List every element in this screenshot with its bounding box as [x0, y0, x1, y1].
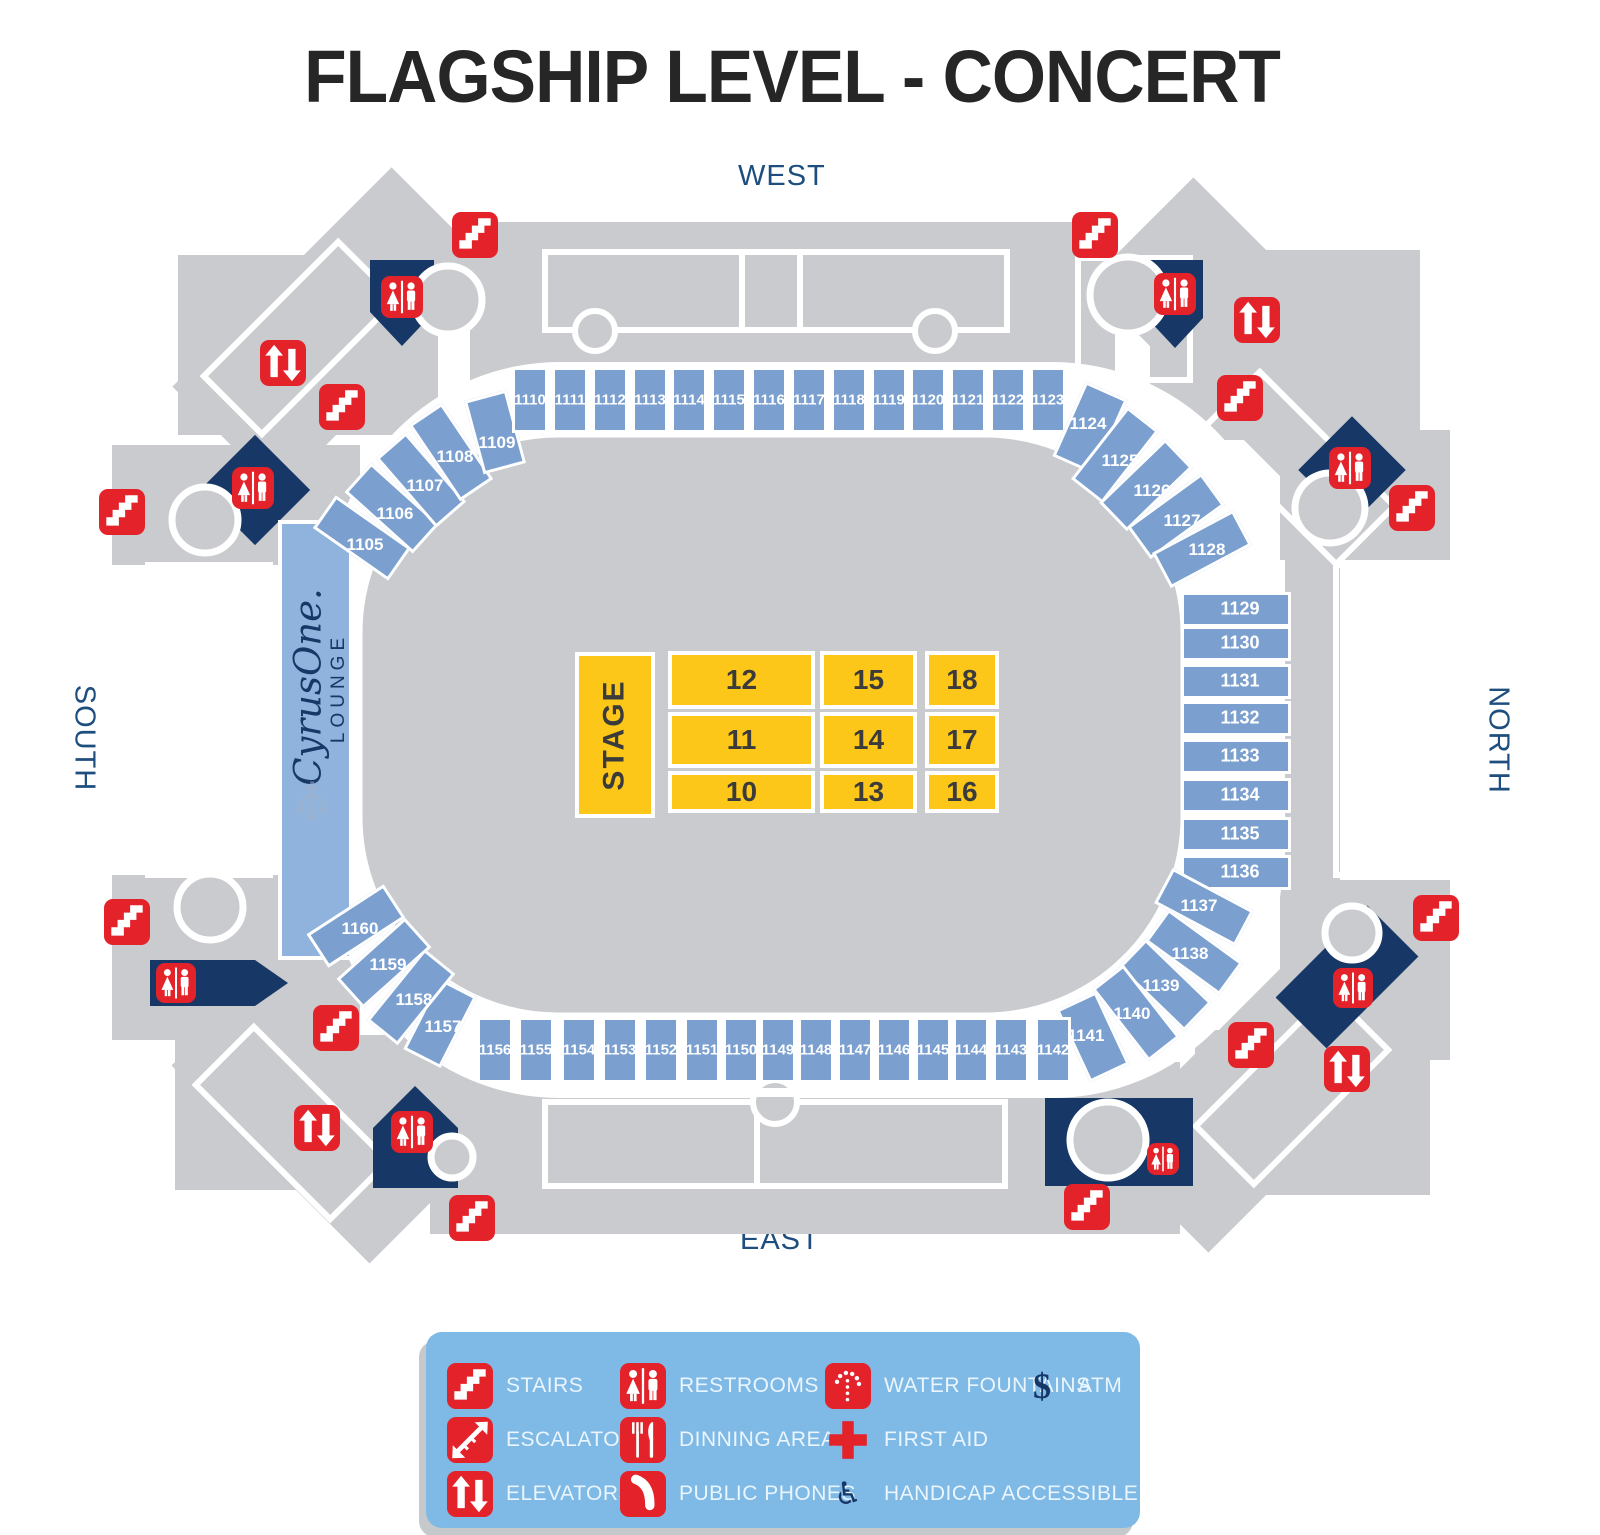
- door-arch: [753, 1080, 797, 1124]
- section-1132[interactable]: [1181, 701, 1291, 736]
- floor-section-12[interactable]: 12: [668, 651, 815, 709]
- floor-section-17[interactable]: 17: [925, 712, 999, 768]
- stairs-icon: [1413, 895, 1459, 941]
- section-1118[interactable]: [831, 367, 867, 433]
- floor-section-18[interactable]: 18: [925, 651, 999, 709]
- legend-label: DINNING AREA: [679, 1428, 836, 1452]
- restrooms-icon: [232, 467, 274, 509]
- stairs-icon: [99, 489, 145, 535]
- section-1152[interactable]: [643, 1017, 679, 1083]
- legend-label: STAIRS: [506, 1374, 583, 1398]
- section-1154[interactable]: [561, 1017, 597, 1083]
- stage[interactable]: STAGE: [575, 652, 655, 818]
- section-1113[interactable]: [632, 367, 668, 433]
- elevators-icon: [1324, 1046, 1370, 1092]
- elevators-icon: [260, 340, 306, 386]
- floor-section-11[interactable]: 11: [668, 712, 815, 768]
- section-1156[interactable]: [477, 1017, 513, 1083]
- lounge-brand: CyrusOne.: [287, 588, 330, 786]
- restrooms-icon: [156, 963, 196, 1003]
- section-1143[interactable]: [993, 1017, 1029, 1083]
- section-1134[interactable]: [1181, 778, 1291, 813]
- restrooms-icon: [1154, 273, 1196, 315]
- section-1151[interactable]: [684, 1017, 720, 1083]
- stage-label: STAGE: [598, 679, 632, 790]
- restrooms-icon: [381, 276, 423, 318]
- section-1119[interactable]: [871, 367, 907, 433]
- section-1114[interactable]: [671, 367, 707, 433]
- section-1150[interactable]: [723, 1017, 759, 1083]
- section-1111[interactable]: [552, 367, 588, 433]
- legend-item-atm: $ATM: [1019, 1365, 1122, 1407]
- phones-icon: [620, 1471, 666, 1517]
- trident-watermark-icon: ♆: [288, 769, 336, 832]
- legend-label: FIRST AID: [884, 1428, 988, 1452]
- stairs-icon: [1389, 485, 1435, 531]
- floor-section-13[interactable]: 13: [820, 771, 917, 813]
- elevators-icon: [1234, 297, 1280, 343]
- section-1153[interactable]: [602, 1017, 638, 1083]
- atm-icon: $: [1019, 1365, 1065, 1407]
- legend-label: ATM: [1078, 1374, 1122, 1398]
- elevators-icon: [447, 1471, 493, 1517]
- restrooms-icon: [391, 1111, 433, 1153]
- section-1142[interactable]: [1035, 1017, 1071, 1083]
- section-1116[interactable]: [751, 367, 787, 433]
- stairs-icon: [447, 1363, 493, 1409]
- dining-icon: [620, 1417, 666, 1463]
- section-1144[interactable]: [953, 1017, 989, 1083]
- section-1112[interactable]: [592, 367, 628, 433]
- floor-section-14[interactable]: 14: [820, 712, 917, 768]
- floor-section-10[interactable]: 10: [668, 771, 815, 813]
- section-1120[interactable]: [910, 367, 946, 433]
- stairs-icon: [1217, 375, 1263, 421]
- restrooms-icon: [620, 1363, 666, 1409]
- legend-item-dining: DINNING AREA: [620, 1417, 836, 1463]
- door-arch: [575, 311, 615, 351]
- first-aid-icon: [825, 1417, 871, 1463]
- legend-item-restrooms: RESTROOMS: [620, 1363, 819, 1409]
- restrooms-icon: [1329, 447, 1371, 489]
- elevators-icon: [294, 1105, 340, 1151]
- section-1121[interactable]: [950, 367, 986, 433]
- section-1117[interactable]: [791, 367, 827, 433]
- section-1149[interactable]: [760, 1017, 796, 1083]
- floor-section-15[interactable]: 15: [820, 651, 917, 709]
- seating-map-canvas: FLAGSHIP LEVEL - CONCERT WEST EAST SOUTH…: [0, 0, 1600, 1535]
- legend-item-phones: PUBLIC PHONES: [620, 1471, 856, 1517]
- floor-section-16[interactable]: 16: [925, 771, 999, 813]
- section-1110[interactable]: [512, 367, 548, 433]
- legend-item-elevators: ELEVATORS: [447, 1471, 633, 1517]
- restrooms-icon: [1333, 968, 1373, 1008]
- stairs-icon: [313, 1005, 359, 1051]
- legend-item-first-aid: FIRST AID: [825, 1417, 988, 1463]
- section-1146[interactable]: [876, 1017, 912, 1083]
- stairs-icon: [1064, 1184, 1110, 1230]
- restrooms-icon: [1147, 1143, 1179, 1175]
- stairs-icon: [449, 1195, 495, 1241]
- section-1130[interactable]: [1181, 626, 1291, 661]
- door-arch: [915, 311, 955, 351]
- legend-label: ELEVATORS: [506, 1482, 633, 1506]
- legend-item-stairs: STAIRS: [447, 1363, 583, 1409]
- legend-item-handicap: ♿HANDICAP ACCESSIBLE: [825, 1476, 1138, 1512]
- section-1155[interactable]: [518, 1017, 554, 1083]
- water-fountains-icon: [825, 1363, 871, 1409]
- stairs-icon: [1228, 1022, 1274, 1068]
- handicap-icon: ♿: [825, 1476, 871, 1512]
- section-1115[interactable]: [711, 367, 747, 433]
- legend-label: RESTROOMS: [679, 1374, 819, 1398]
- lounge-sub-label: LOUNGE: [328, 633, 350, 743]
- section-1131[interactable]: [1181, 664, 1291, 699]
- section-1129[interactable]: [1181, 592, 1291, 627]
- stairs-icon: [452, 212, 498, 258]
- stairs-icon: [1072, 212, 1118, 258]
- section-1133[interactable]: [1181, 739, 1291, 774]
- escalators-icon: [447, 1417, 493, 1463]
- stairs-icon: [319, 384, 365, 430]
- section-1123[interactable]: [1030, 367, 1066, 433]
- legend-label: HANDICAP ACCESSIBLE: [884, 1482, 1138, 1506]
- section-1135[interactable]: [1181, 817, 1291, 852]
- stairs-icon: [104, 899, 150, 945]
- section-1145[interactable]: [915, 1017, 951, 1083]
- section-1148[interactable]: [798, 1017, 834, 1083]
- section-1122[interactable]: [990, 367, 1026, 433]
- section-1147[interactable]: [837, 1017, 873, 1083]
